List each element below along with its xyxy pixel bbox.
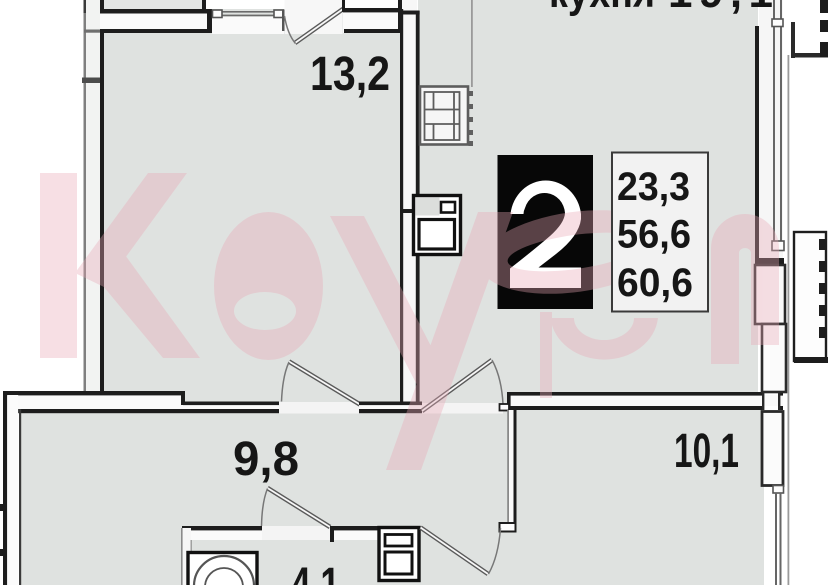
svg-text:60,6: 60,6 (617, 261, 693, 305)
svg-text:23,3: 23,3 (617, 165, 690, 209)
svg-text:13,2: 13,2 (310, 48, 390, 101)
svg-text:56,6: 56,6 (617, 213, 691, 257)
svg-text:10,1: 10,1 (674, 425, 739, 478)
svg-text:4,1: 4,1 (291, 559, 340, 585)
svg-text:кухня: кухня (549, 0, 655, 17)
svg-text:19,1: 19,1 (668, 0, 773, 17)
svg-text:9,8: 9,8 (233, 433, 299, 486)
